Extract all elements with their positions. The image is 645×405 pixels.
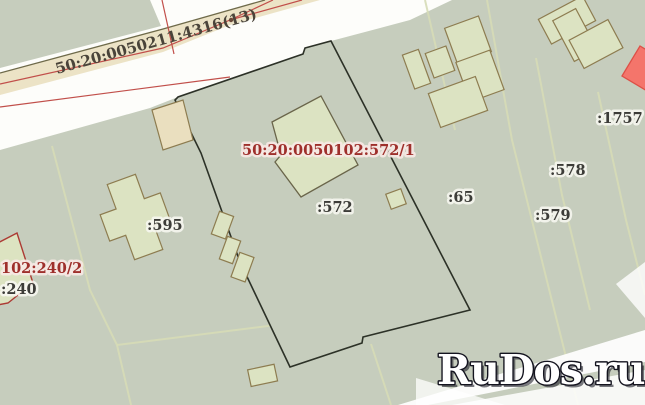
parcel-label-65: :65: [448, 189, 474, 206]
parcel-label-572: :572: [317, 199, 353, 216]
parcel-label-579: :579: [535, 207, 571, 224]
selected-parcel-full-label: 50:20:0050102:572/1: [242, 142, 415, 159]
parcel-label-595: :595: [147, 217, 183, 234]
watermark-rudos-text: RuDos.ru: [437, 346, 645, 394]
parcel-label-578: :578: [550, 162, 586, 179]
cadastral-map-viewport: 50:20:0050211:4316(13) 50:20:0050102:5: [0, 0, 645, 405]
cadastral-map-canvas: 50:20:0050211:4316(13) 50:20:0050102:5: [0, 0, 645, 405]
parcel-label-240-full: 102:240/2: [1, 260, 82, 277]
parcel-label-240: :240: [1, 281, 37, 298]
parcel-label-1757: :1757: [597, 110, 643, 127]
